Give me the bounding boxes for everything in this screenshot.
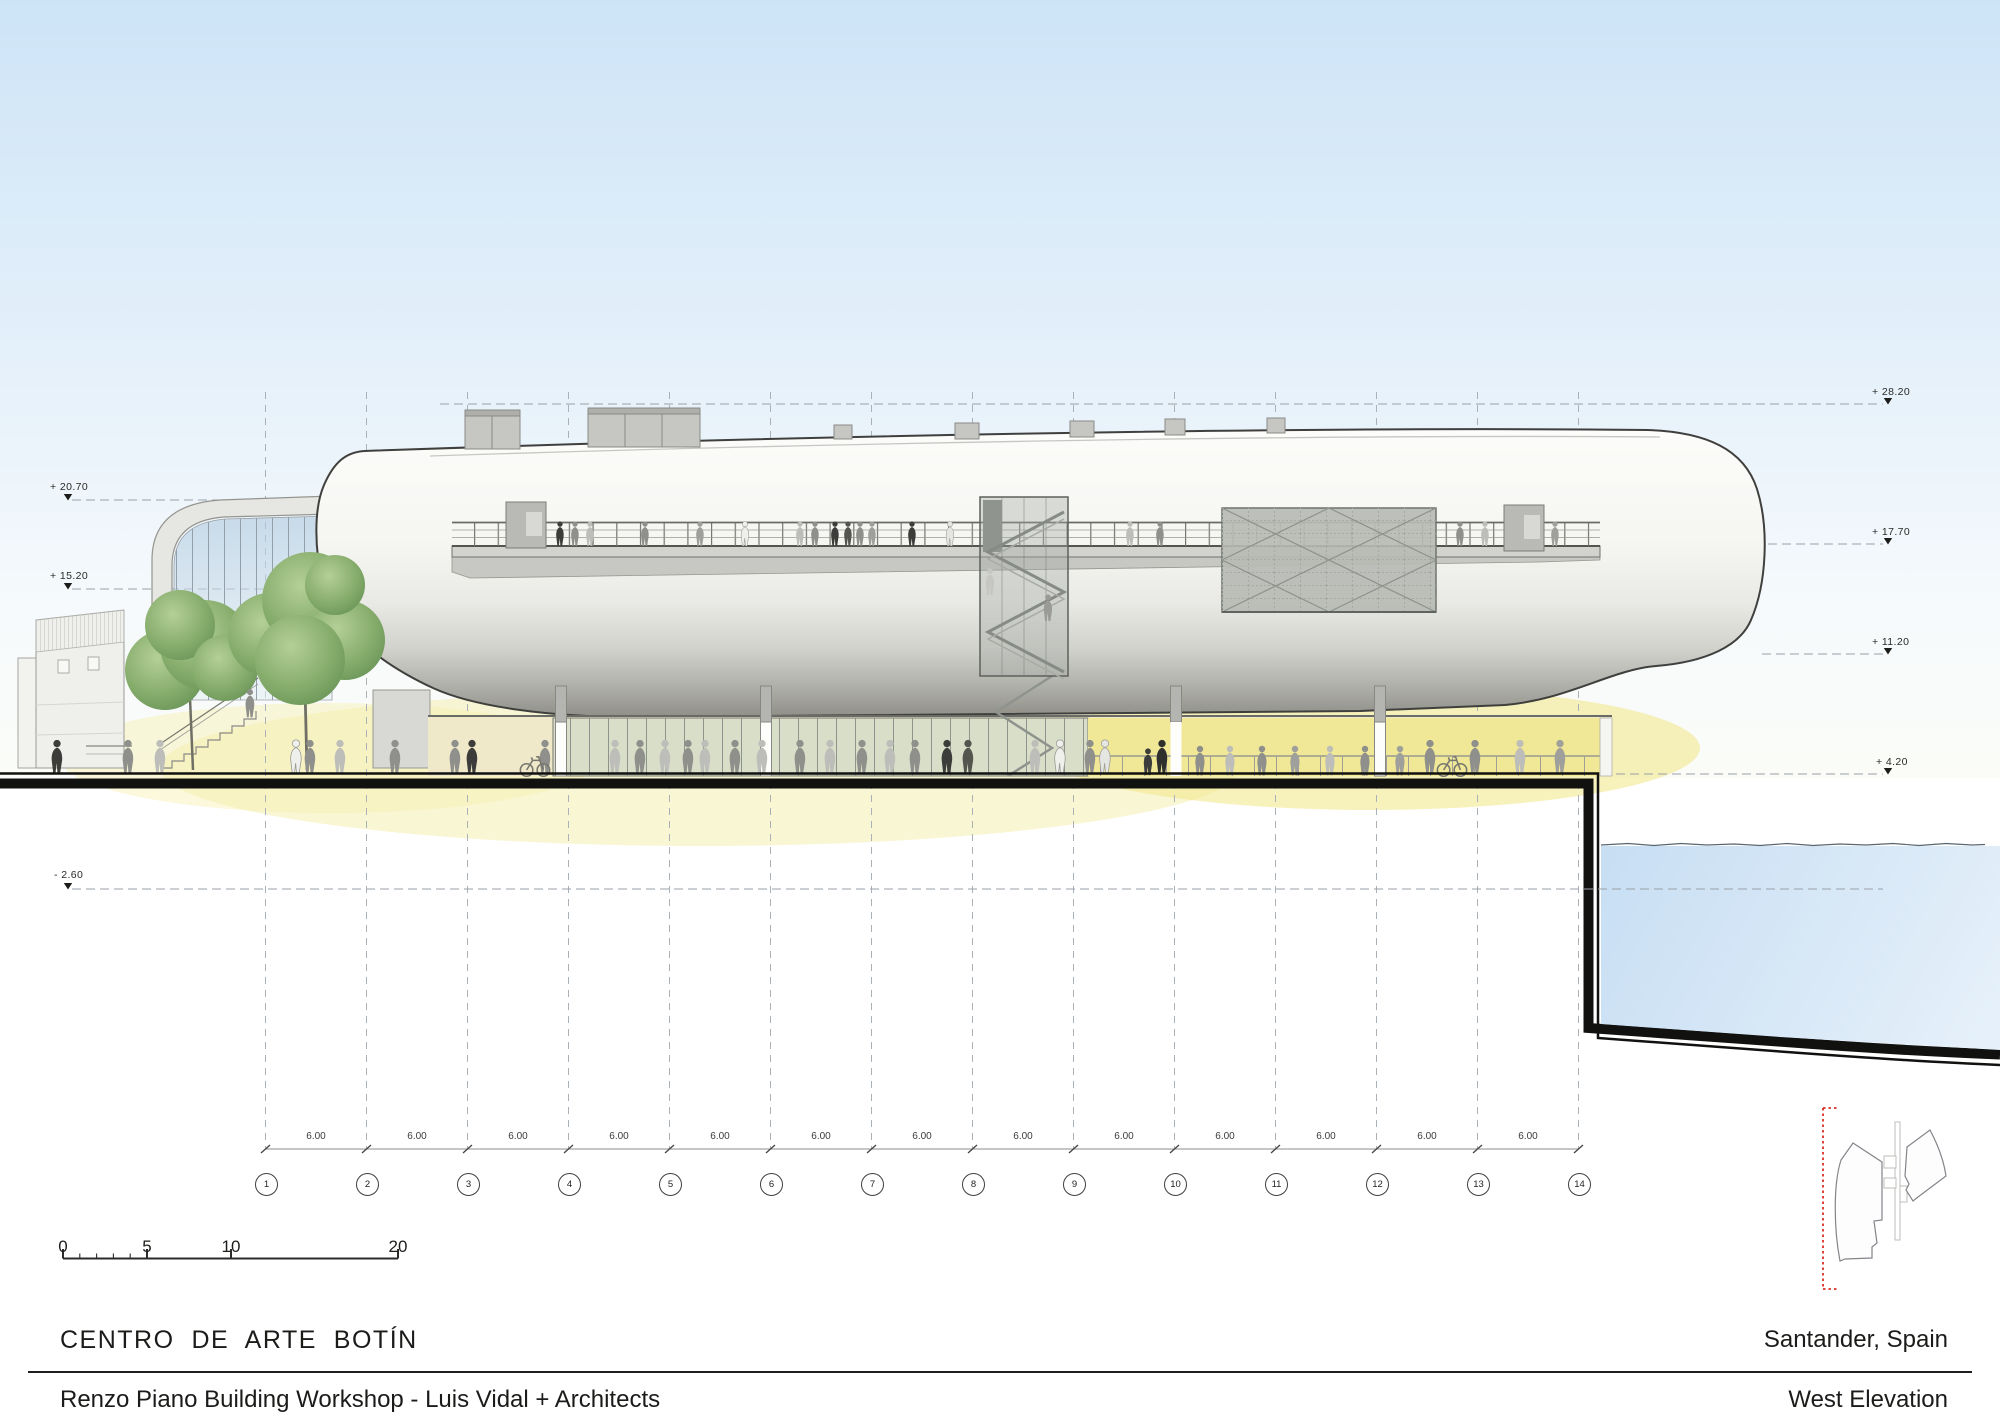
keyplan-east-lobe: [1905, 1130, 1946, 1201]
water-body: [1601, 846, 2000, 1050]
plaza-shed: [373, 690, 430, 768]
glass-mullions: [553, 718, 1088, 776]
stair-tower: [980, 497, 1068, 679]
water: [1601, 844, 2000, 1051]
column: [1171, 686, 1182, 776]
window: [58, 660, 69, 673]
keyplan-west-lobe: [1835, 1143, 1882, 1261]
mesh-panel: [1222, 508, 1436, 612]
stair-door: [983, 500, 1002, 552]
column: [556, 686, 567, 776]
dimension-string: [261, 1145, 1583, 1153]
elevation-sheet: + 20.70 + 15.20 - 2.60 + 28.20 + 17.70 +…: [0, 0, 2000, 1415]
water-surface-line: [1601, 844, 1985, 846]
window: [88, 657, 99, 670]
column: [1375, 686, 1386, 776]
scale-bar: [63, 1249, 398, 1259]
key-plan: [1823, 1108, 1946, 1289]
elevation-drawing: [0, 0, 2000, 1415]
